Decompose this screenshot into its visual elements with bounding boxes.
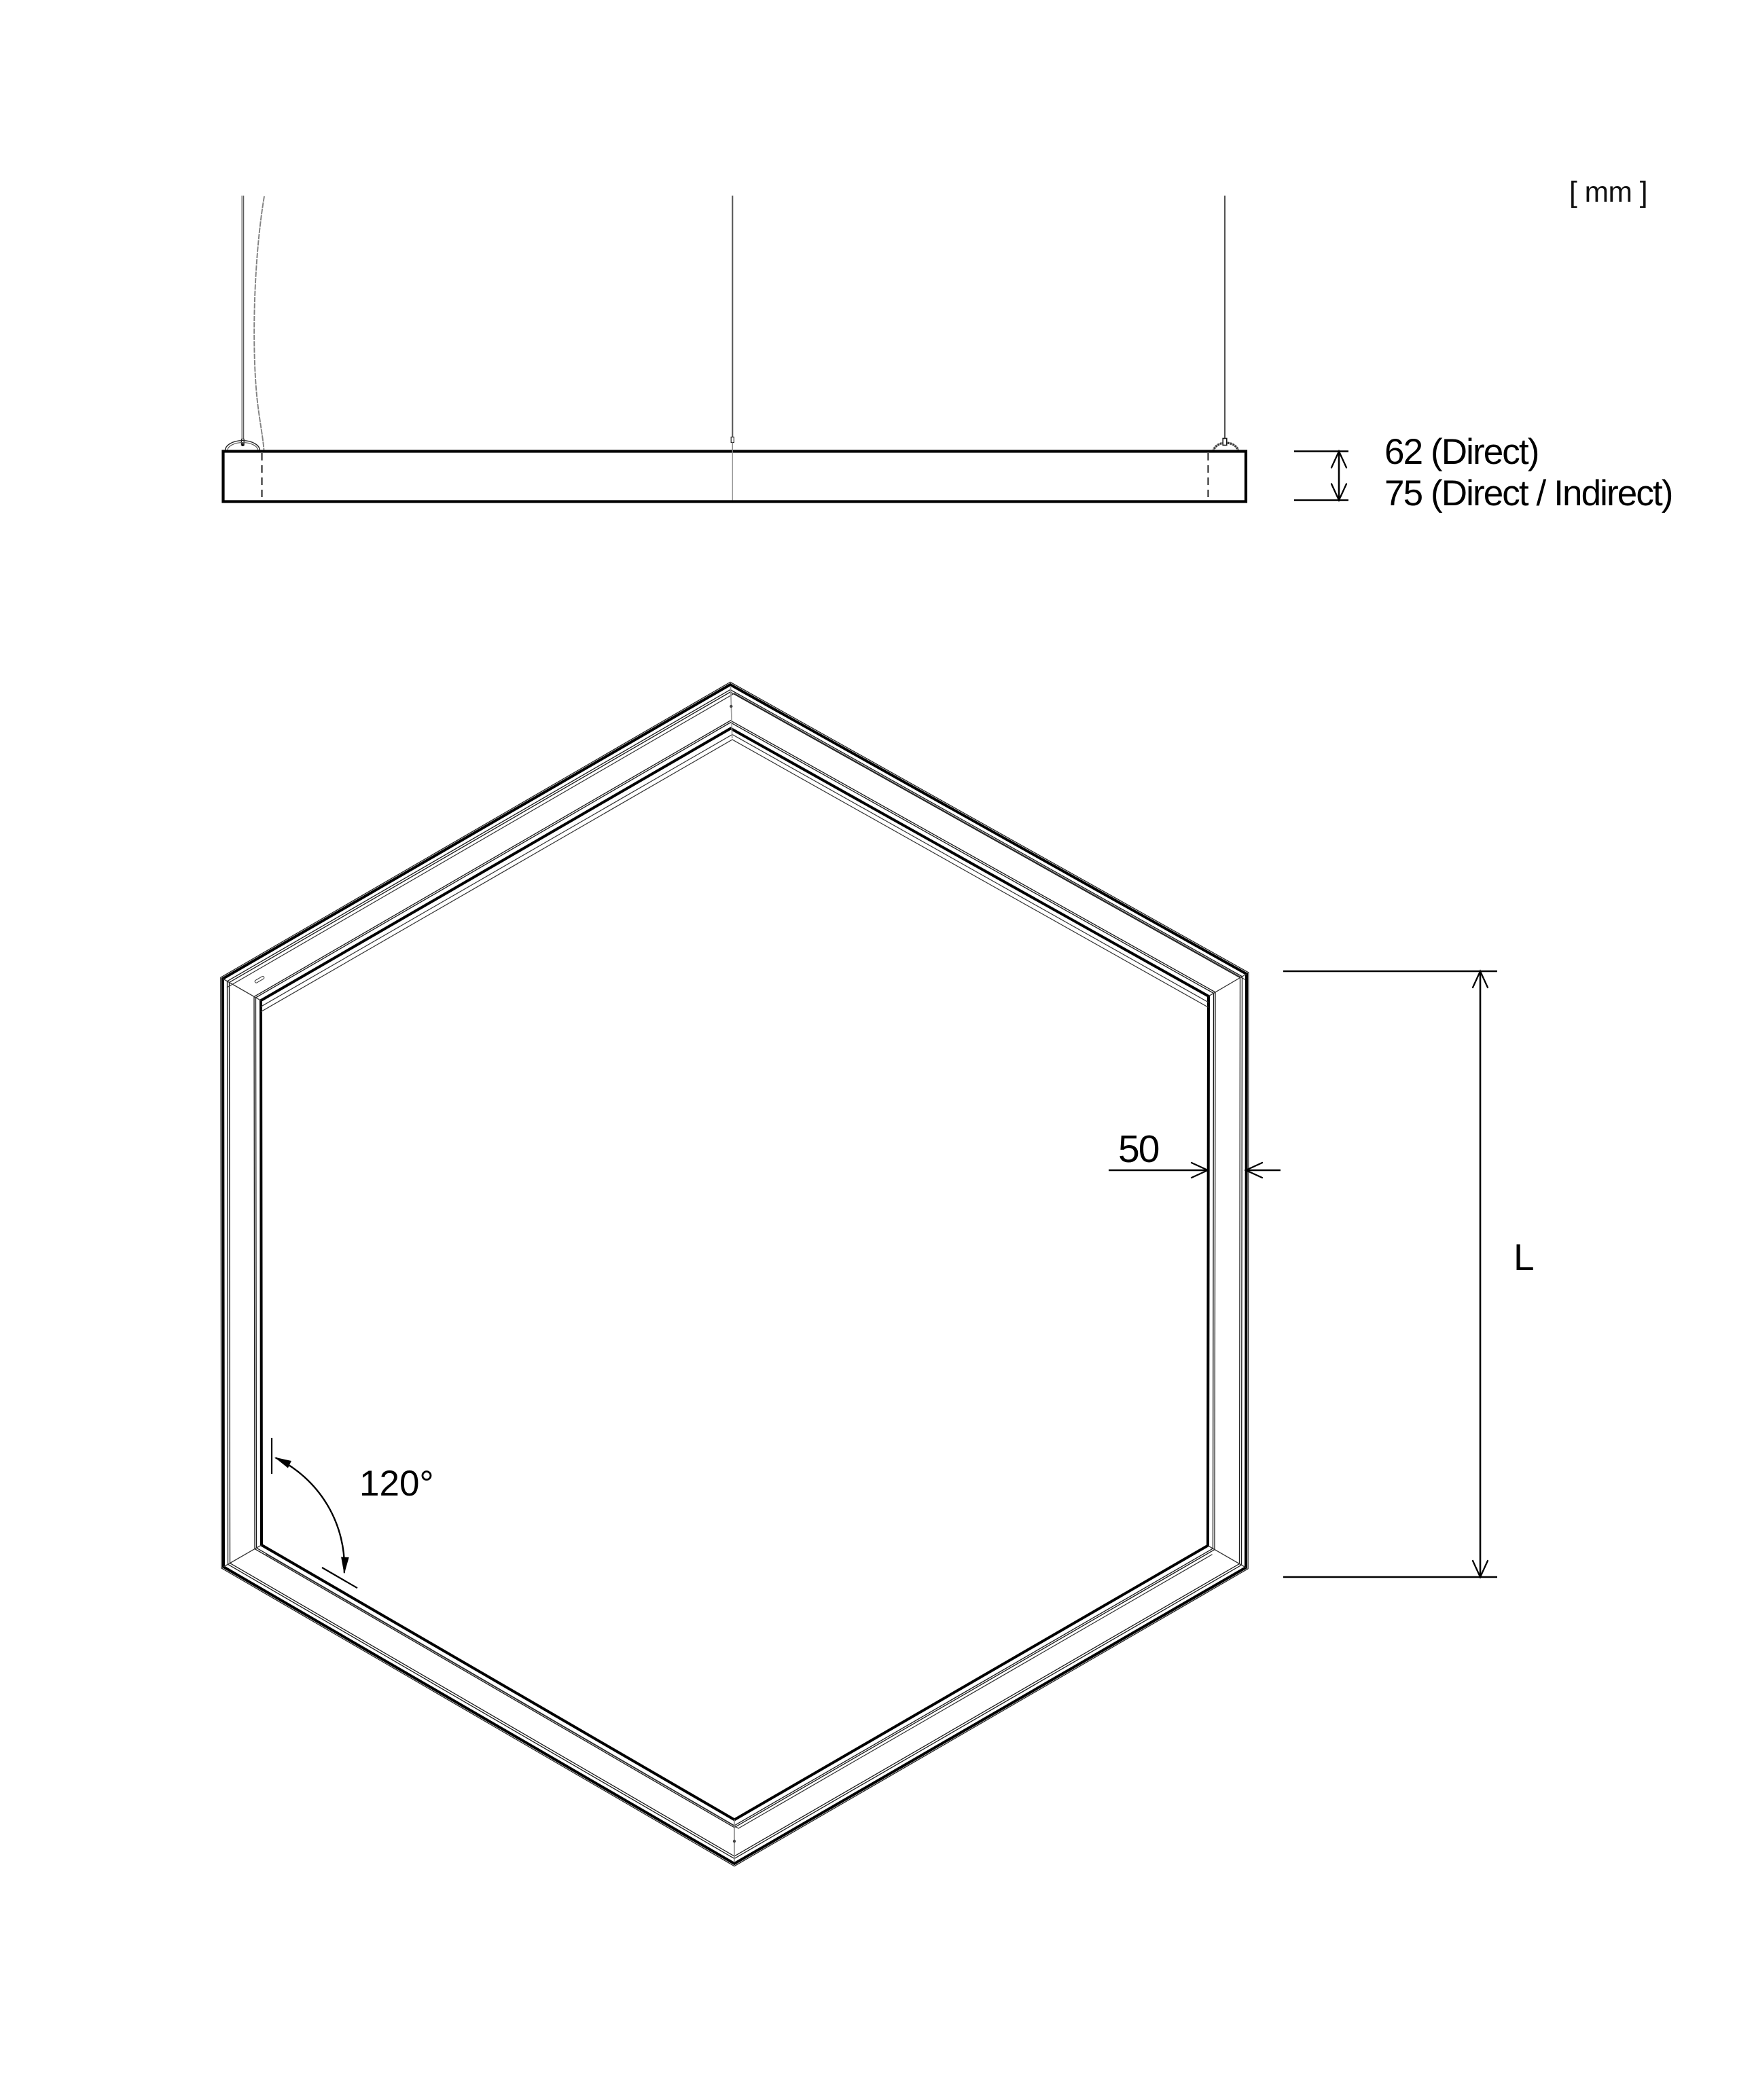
svg-text:62 (Direct): 62 (Direct) [1384, 432, 1538, 472]
svg-text:75 (Direct / Indirect): 75 (Direct / Indirect) [1384, 473, 1672, 513]
svg-text:L: L [1514, 1236, 1535, 1278]
svg-text:[ mm ]: [ mm ] [1569, 177, 1647, 209]
svg-text:50: 50 [1118, 1127, 1159, 1171]
svg-text:120°: 120° [359, 1464, 434, 1504]
